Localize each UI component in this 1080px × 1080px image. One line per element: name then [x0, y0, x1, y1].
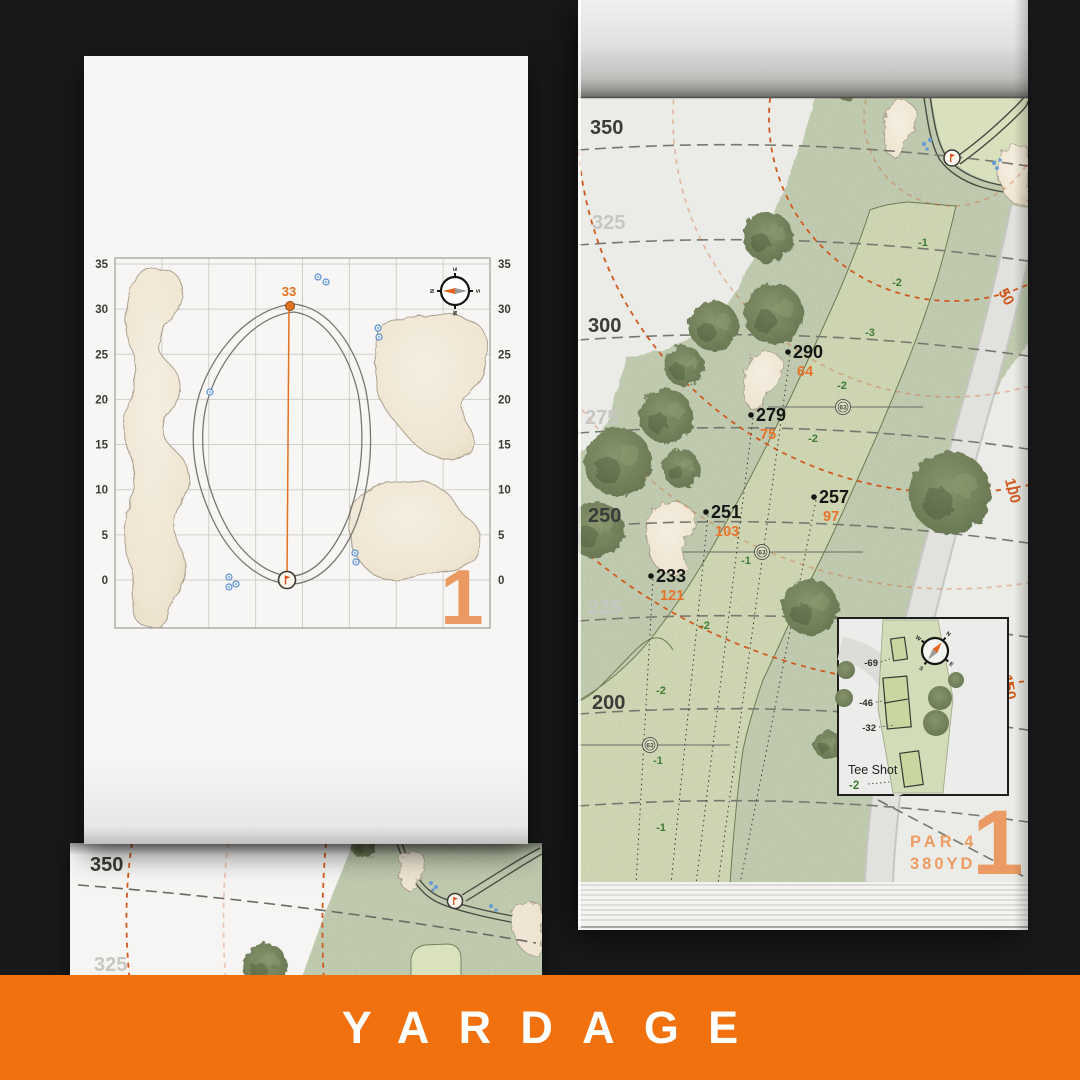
- yardline-label: 325: [94, 954, 127, 976]
- shot-to-green: 64: [797, 364, 813, 380]
- hole-map-page: -1-2-3-2-2-1-2-2-1-1 636363 290642: [578, 0, 1028, 930]
- pin-position-dot: [286, 302, 295, 311]
- sprinkler-head: 63: [836, 400, 851, 415]
- compass-w: W: [453, 310, 459, 316]
- axis-tick: 5: [498, 530, 505, 542]
- bunkers: [124, 267, 488, 627]
- edge-shadow: [1014, 0, 1028, 930]
- compass-s: S: [476, 289, 482, 293]
- page-shading: [84, 756, 528, 844]
- next-page-peek: 350325: [70, 843, 542, 983]
- delta-label: -2: [656, 685, 666, 697]
- tee-offset: -46: [859, 698, 873, 709]
- tree: [639, 389, 693, 443]
- delta-label: -1: [918, 237, 928, 249]
- next-page-map: 350325: [70, 843, 542, 983]
- axis-tick: 10: [498, 485, 511, 497]
- delta-label: -2: [700, 620, 710, 632]
- flag-icon: [279, 572, 296, 589]
- green-outline: [193, 304, 370, 584]
- tree: [664, 346, 704, 386]
- yardage-book-mockup: 33 3535303025252020151510105500 NESW 1: [0, 0, 1080, 1080]
- pin-line: [287, 308, 289, 580]
- tee-shot-inset: -69-46-32 NESW Tee Shot -2: [835, 618, 1008, 795]
- tee-shot-delta: -2: [849, 780, 859, 792]
- tree: [689, 301, 739, 351]
- svg-text:63: 63: [839, 404, 847, 411]
- green-detail-map: 33 3535303025252020151510105500 NESW 1: [84, 56, 528, 844]
- tree: [662, 449, 700, 487]
- sprinkler-dot: [315, 274, 321, 280]
- yardage-label: 380YD: [910, 855, 975, 873]
- yardline-label: 325: [592, 212, 625, 234]
- axis-tick: 20: [95, 394, 108, 406]
- flag-icon: [448, 894, 463, 909]
- yardline-labels: 350325: [90, 854, 127, 976]
- page-stack: [578, 882, 1028, 928]
- fold-shadow: [70, 843, 542, 855]
- bunker: [375, 314, 488, 459]
- hole-number: 1: [440, 553, 483, 641]
- axis-tick: 15: [498, 440, 511, 452]
- sprinkler-dot: [376, 334, 382, 340]
- svg-text:63: 63: [758, 549, 766, 556]
- shot-carry: 257: [819, 487, 849, 507]
- tree: [909, 452, 991, 534]
- sprinkler-dot: [233, 581, 239, 587]
- shot-carry: 290: [793, 342, 823, 362]
- yardline-label: 350: [590, 117, 623, 139]
- sprinkler-head: 63: [755, 545, 770, 560]
- edge-highlight: [578, 0, 581, 930]
- banner-title: YARDAGE: [342, 1002, 768, 1054]
- delta-label: -1: [656, 822, 666, 834]
- axis-tick: 35: [95, 259, 108, 271]
- tree: [928, 686, 952, 710]
- sprinkler-dot: [207, 389, 213, 395]
- shot-to-green: 103: [715, 524, 739, 540]
- pin-distance-label: 33: [282, 284, 296, 299]
- tree: [835, 689, 853, 707]
- shot-carry: 233: [656, 566, 686, 586]
- tee-offset: -32: [862, 723, 876, 734]
- sprinkler-dot: [226, 584, 232, 590]
- sprinkler-dot: [353, 559, 359, 565]
- tree: [743, 212, 793, 262]
- yardline-label: 250: [588, 505, 621, 527]
- bunker: [124, 267, 189, 627]
- yardline-label: 200: [592, 692, 625, 714]
- tree: [837, 661, 855, 679]
- sprinkler-dot: [323, 279, 329, 285]
- green-detail-page: 33 3535303025252020151510105500 NESW 1: [84, 56, 528, 844]
- flag-icon: [944, 150, 960, 166]
- axis-tick: 15: [95, 440, 108, 452]
- axis-tick: 10: [95, 485, 108, 497]
- axis-tick: 30: [95, 304, 108, 316]
- compass-n: N: [430, 289, 436, 293]
- sprinkler-dot: [375, 325, 381, 331]
- shot-carry: 251: [711, 502, 741, 522]
- delta-label: -2: [892, 277, 902, 289]
- yardline-label: 350: [90, 854, 123, 876]
- shot-to-green: 97: [823, 509, 839, 525]
- delta-label: -2: [808, 433, 818, 445]
- axis-tick: 0: [102, 575, 108, 587]
- tree: [782, 579, 838, 635]
- page-curl: [578, 0, 1028, 97]
- yardline-label: 275: [585, 407, 618, 429]
- yardline-label: 225: [588, 597, 621, 619]
- sprinkler-head: 63: [643, 738, 658, 753]
- sprinkler-dot: [352, 550, 358, 556]
- tee-offset: -69: [864, 658, 878, 669]
- delta-label: -1: [653, 755, 663, 767]
- delta-label: -3: [865, 327, 875, 339]
- axis-tick: 0: [498, 575, 504, 587]
- banner: YARDAGE: [0, 975, 1080, 1080]
- axis-tick: 20: [498, 394, 511, 406]
- shot-to-green: 75: [760, 427, 776, 443]
- tree: [584, 428, 652, 496]
- compass-icon: NESW: [430, 267, 482, 316]
- shot-carry: 279: [756, 405, 786, 425]
- tree: [923, 710, 949, 736]
- axis-tick: 25: [95, 349, 108, 361]
- yardline-label: 300: [588, 315, 621, 337]
- hole-map: -1-2-3-2-2-1-2-2-1-1 636363 290642: [578, 0, 1028, 930]
- tee-shot-label: Tee Shot: [848, 763, 898, 777]
- sprinkler-dot: [226, 574, 232, 580]
- axis-tick: 25: [498, 349, 511, 361]
- distance-arcs: [126, 843, 326, 983]
- delta-label: -1: [741, 555, 751, 567]
- axis-tick: 5: [102, 530, 109, 542]
- tree: [948, 672, 964, 688]
- delta-label: -2: [837, 380, 847, 392]
- svg-text:63: 63: [646, 742, 654, 749]
- shot-to-green: 121: [660, 588, 684, 604]
- tree: [744, 284, 804, 344]
- axis-tick: 30: [498, 304, 511, 316]
- compass-e: E: [453, 267, 459, 271]
- axis-tick: 35: [498, 259, 511, 271]
- par-label: PAR 4: [910, 833, 977, 851]
